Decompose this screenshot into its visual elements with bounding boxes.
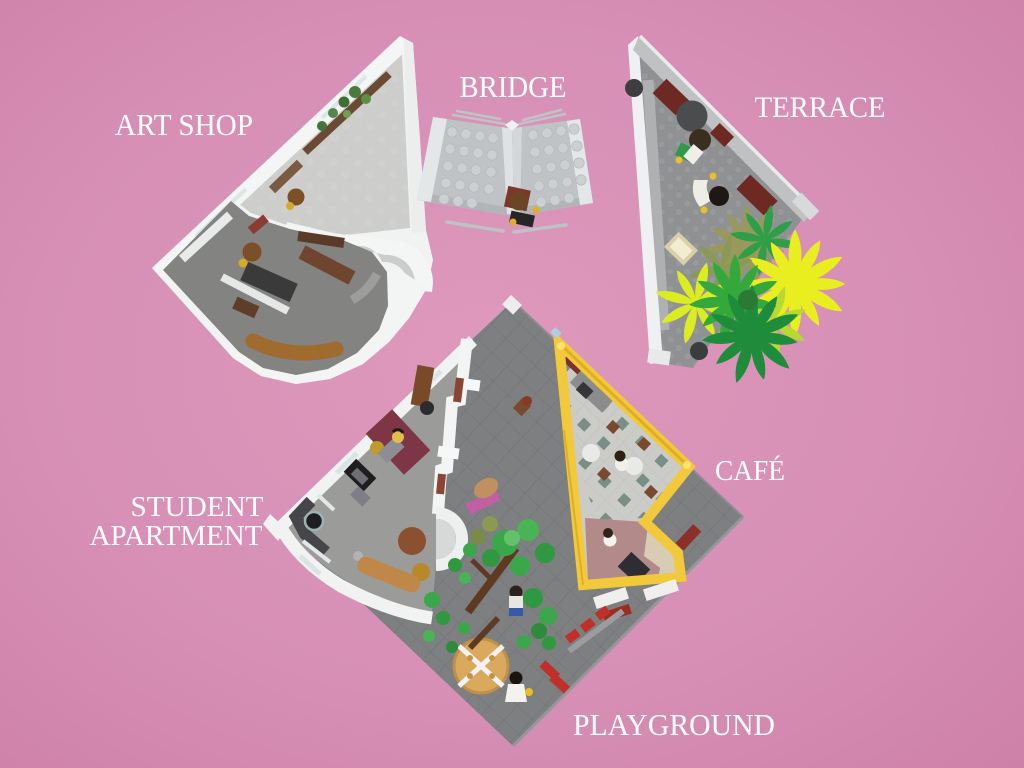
svg-text:PLAYGROUND: PLAYGROUND	[573, 707, 775, 742]
svg-text:CAFÉ: CAFÉ	[715, 456, 785, 487]
svg-text:ART SHOP: ART SHOP	[115, 107, 253, 142]
svg-text:BRIDGE: BRIDGE	[460, 69, 567, 104]
svg-text:APARTMENT: APARTMENT	[90, 521, 263, 552]
svg-text:TERRACE: TERRACE	[755, 91, 886, 124]
svg-text:STUDENT: STUDENT	[131, 492, 264, 523]
